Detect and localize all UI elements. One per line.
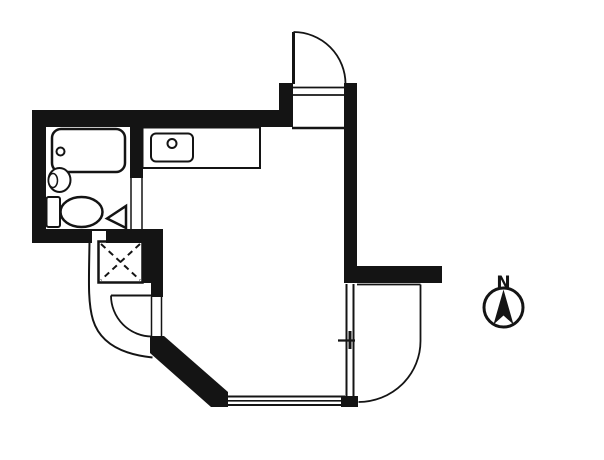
south-window <box>225 397 345 406</box>
floorplan-canvas: N <box>0 0 604 460</box>
bathroom-door-triangle <box>107 206 126 228</box>
wall-right-bar <box>344 266 442 283</box>
entrance-door <box>292 32 346 128</box>
compass: N <box>484 273 523 327</box>
east-window-balcony <box>338 284 421 402</box>
wall-entrance-left <box>279 83 293 127</box>
wall-right <box>344 83 357 267</box>
kitchen-faucet <box>168 139 177 148</box>
washbasin-tap <box>49 174 58 188</box>
wall-top <box>32 110 293 127</box>
toilet-bowl <box>61 197 103 227</box>
entrance-door-swing-arc <box>294 32 346 84</box>
wall-diagonal-southwest <box>150 336 228 407</box>
wall-above-balcony-door <box>151 283 163 297</box>
wall-shaft-right <box>143 229 163 283</box>
toilet-tank <box>47 197 61 227</box>
unit-bathroom <box>47 129 143 229</box>
kitchen <box>143 128 261 169</box>
curved-balcony-right-edge <box>359 285 421 403</box>
wall-bathroom-partition <box>130 127 143 178</box>
floorplan-drawing: N <box>0 0 604 460</box>
balcony-door-swing-arc <box>111 296 152 337</box>
bathtub-drain <box>57 148 65 156</box>
wall-left <box>32 110 46 243</box>
pipe-shaft <box>99 242 143 283</box>
